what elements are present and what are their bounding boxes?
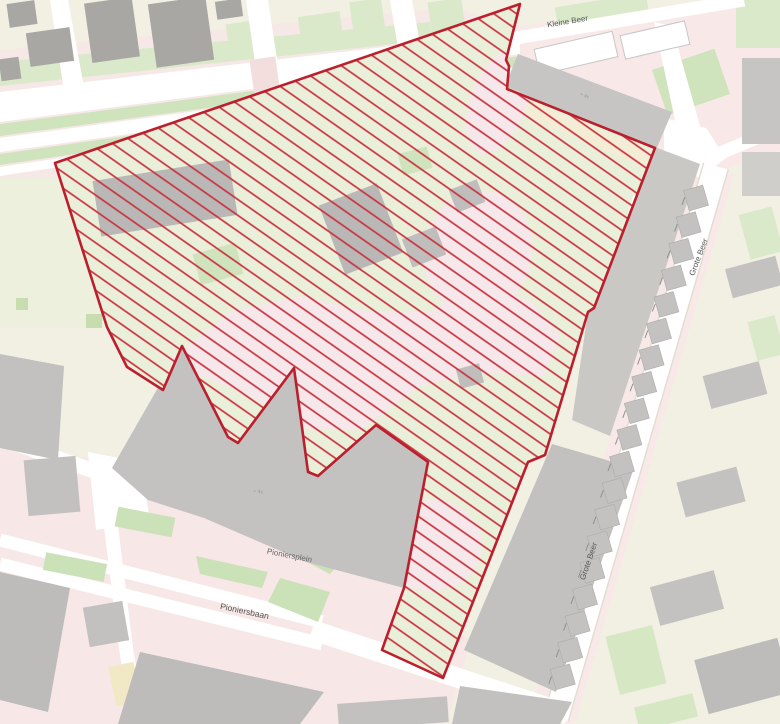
grass-left-dot-2 <box>16 298 28 310</box>
building-topleft-4 <box>84 0 140 63</box>
building-left-2 <box>24 456 81 516</box>
building-left-1 <box>0 354 64 460</box>
building-topleft-5 <box>148 0 214 68</box>
building-topleft-1 <box>6 0 37 28</box>
building-fareast-1 <box>742 58 780 144</box>
building-topleft-3 <box>0 57 21 82</box>
grass-topright-3 <box>736 0 780 48</box>
grass-top-2 <box>349 0 387 44</box>
building-swblock-2 <box>83 601 129 647</box>
building-note-mall: + 4x <box>253 489 264 496</box>
map-view: Kleine BeerGrote BeerGrote BeerPioniersp… <box>0 0 780 724</box>
grass-top-1 <box>298 11 344 51</box>
building-fareast-2 <box>742 152 780 196</box>
building-topleft-2 <box>26 27 74 67</box>
map-canvas[interactable]: Kleine BeerGrote BeerGrote BeerPioniersp… <box>0 0 780 724</box>
grass-left-dot-1 <box>86 314 102 328</box>
